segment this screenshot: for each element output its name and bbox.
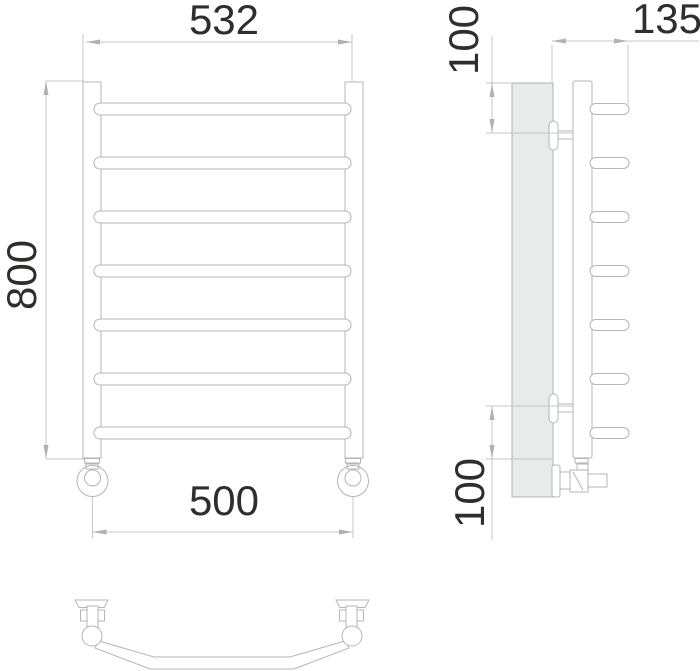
side-bars bbox=[590, 104, 629, 439]
front-bar bbox=[94, 157, 351, 169]
side-bar-stub bbox=[590, 374, 629, 385]
side-fitting-ring bbox=[575, 459, 588, 464]
valve-body bbox=[570, 470, 588, 492]
arrowhead bbox=[490, 119, 495, 133]
side-bar-stub bbox=[590, 428, 629, 439]
side-bar-stub bbox=[590, 212, 629, 223]
drawing-canvas: 532 800 500 135 100 bbox=[0, 0, 700, 671]
dim-side-top-offset-label: 100 bbox=[440, 5, 487, 75]
arrowhead bbox=[490, 445, 495, 459]
side-view bbox=[512, 81, 629, 497]
front-bar bbox=[94, 265, 351, 277]
top-bracket-flange bbox=[549, 121, 558, 150]
dim-front-height: 800 bbox=[0, 81, 84, 459]
left-fitting-ring bbox=[85, 459, 100, 464]
side-bar-stub bbox=[590, 266, 629, 277]
right-clamp-tab bbox=[340, 610, 347, 621]
left-rail-section-circle bbox=[82, 626, 102, 646]
side-bar-stub bbox=[590, 320, 629, 331]
left-clamp-tab bbox=[98, 610, 105, 621]
bottom-bracket-arm bbox=[558, 404, 573, 412]
front-bar bbox=[94, 211, 351, 223]
arrowhead bbox=[339, 530, 353, 535]
right-valve-inner-circle bbox=[345, 470, 361, 486]
top-bracket bbox=[549, 121, 573, 150]
wall-panel bbox=[512, 83, 553, 497]
arrowhead bbox=[490, 83, 495, 97]
arrowhead bbox=[86, 40, 100, 45]
left-clamp-tab bbox=[81, 610, 88, 621]
side-bar-stub bbox=[590, 158, 629, 169]
top-view-right-bracket bbox=[336, 600, 369, 646]
bottom-bracket-flange bbox=[549, 394, 558, 423]
bottom-bracket bbox=[549, 394, 573, 423]
side-valve-assembly bbox=[552, 459, 607, 498]
dim-side-bottom-offset-label: 100 bbox=[446, 458, 493, 528]
front-left-valve bbox=[77, 459, 108, 497]
dim-side-depth-label: 135 bbox=[632, 0, 700, 42]
top-bracket-arm bbox=[558, 131, 573, 139]
dim-connection-spacing-label: 500 bbox=[189, 477, 259, 524]
top-view bbox=[75, 600, 369, 669]
arrowhead bbox=[93, 530, 107, 535]
arrowhead bbox=[44, 81, 49, 95]
front-bar bbox=[94, 103, 351, 115]
dim-connection-spacing: 500 bbox=[93, 477, 354, 538]
arrowhead bbox=[552, 39, 566, 44]
valve-neck bbox=[560, 472, 570, 489]
left-valve-inner-circle bbox=[85, 470, 101, 486]
arrowhead bbox=[44, 445, 49, 459]
side-rail bbox=[573, 81, 592, 458]
right-fitting-ring bbox=[346, 459, 361, 464]
right-clamp-tab bbox=[357, 610, 364, 621]
dim-front-width: 532 bbox=[83, 0, 352, 82]
left-stem bbox=[87, 606, 98, 628]
right-stem bbox=[346, 606, 357, 628]
front-bar bbox=[94, 427, 351, 439]
front-view bbox=[77, 82, 369, 497]
dim-front-width-label: 532 bbox=[189, 0, 259, 43]
side-fitting-ring bbox=[577, 464, 588, 470]
valve-wall-flange bbox=[552, 465, 560, 497]
dim-front-height-label: 800 bbox=[0, 240, 45, 310]
top-view-bar bbox=[95, 641, 349, 669]
top-view-left-bracket bbox=[75, 600, 108, 646]
front-bar bbox=[94, 319, 351, 331]
front-right-valve bbox=[338, 459, 369, 497]
arrowhead bbox=[490, 406, 495, 420]
right-rail-section-circle bbox=[342, 626, 362, 646]
technical-drawing: 532 800 500 135 100 bbox=[0, 0, 700, 671]
side-bar-stub bbox=[590, 104, 629, 115]
valve-spout bbox=[588, 474, 607, 487]
front-bar bbox=[94, 373, 351, 385]
arrowhead bbox=[338, 40, 352, 45]
arrowhead bbox=[614, 39, 628, 44]
front-bars bbox=[94, 103, 351, 439]
